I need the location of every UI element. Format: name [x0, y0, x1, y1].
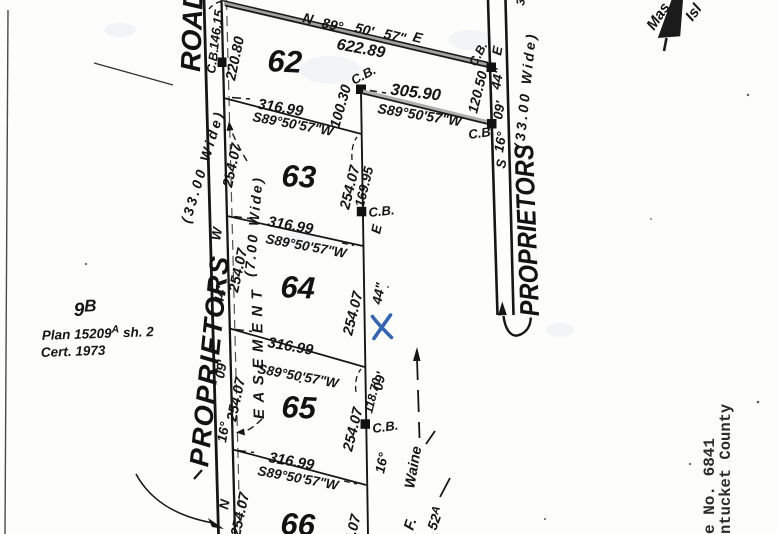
- svg-text:65: 65: [281, 389, 318, 426]
- svg-text:64: 64: [280, 269, 316, 306]
- svg-text:ntucket County: ntucket County: [717, 404, 735, 534]
- svg-text:66: 66: [280, 506, 317, 534]
- svg-text:ROAD: ROAD: [175, 0, 209, 72]
- svg-text:63: 63: [281, 158, 317, 195]
- svg-text:PROPRIETORS: PROPRIETORS: [509, 144, 545, 317]
- svg-text:62: 62: [267, 43, 303, 80]
- svg-text:EASEMENT: EASEMENT: [249, 284, 268, 420]
- svg-text:C.B.: C.B.: [368, 202, 395, 220]
- svg-text:Cert. 1973: Cert. 1973: [41, 343, 107, 360]
